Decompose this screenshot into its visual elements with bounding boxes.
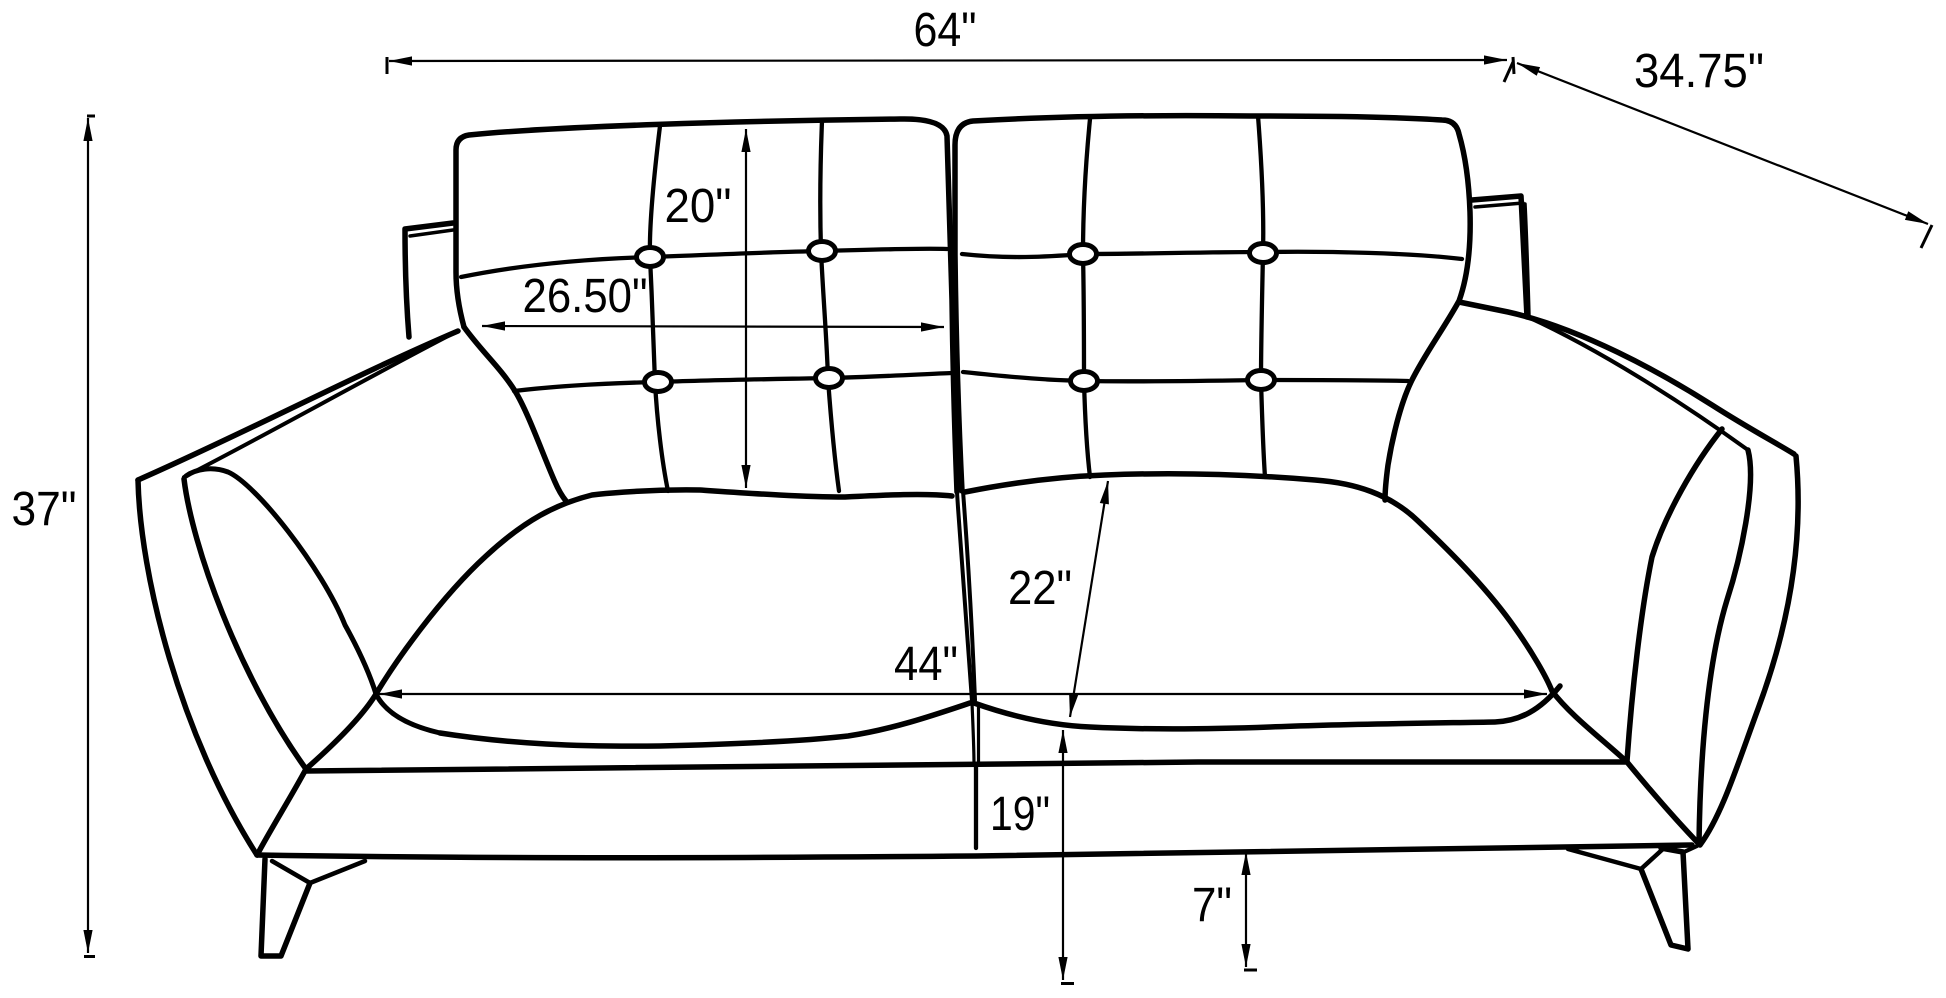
svg-text:37": 37" (12, 483, 77, 536)
svg-text:44": 44" (894, 638, 958, 691)
svg-text:34.75": 34.75" (1634, 45, 1764, 98)
svg-text:20": 20" (665, 180, 732, 233)
svg-text:22": 22" (1008, 562, 1072, 615)
svg-text:26.50": 26.50" (523, 270, 648, 323)
svg-text:7": 7" (1192, 879, 1232, 932)
svg-text:19": 19" (990, 788, 1050, 841)
svg-text:64": 64" (914, 4, 977, 57)
